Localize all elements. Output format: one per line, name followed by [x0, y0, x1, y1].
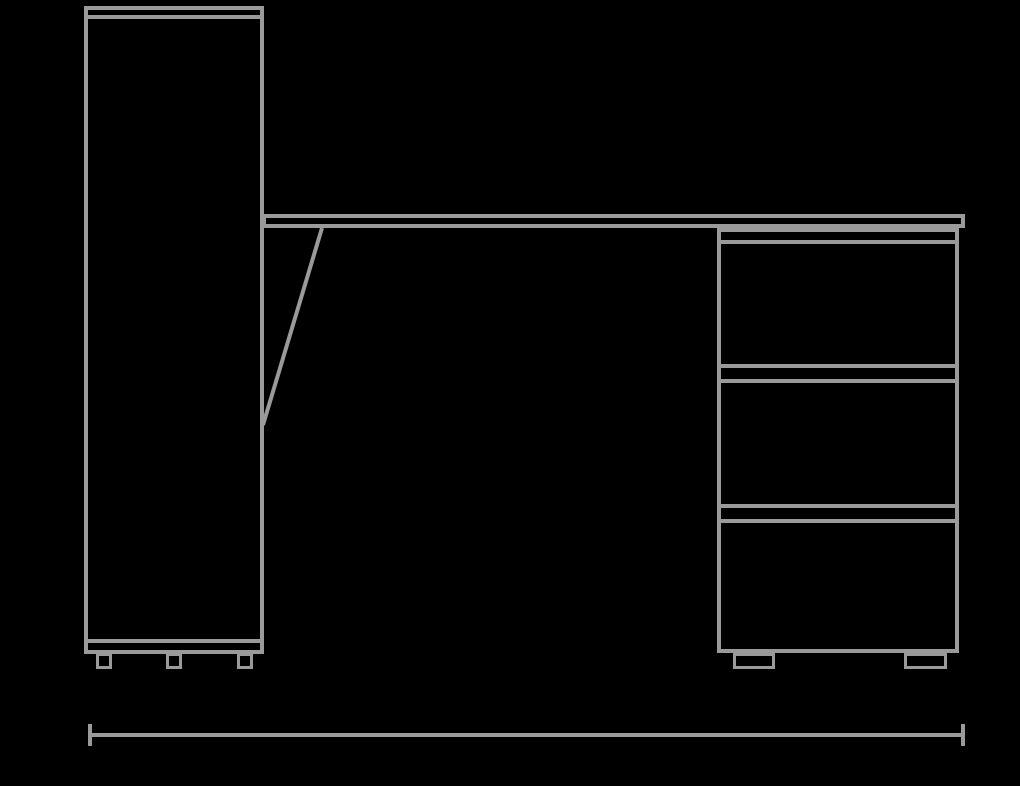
cabinet-plinth-line [84, 639, 264, 643]
drawer2-top-line [717, 379, 959, 383]
drawing-canvas [0, 0, 1020, 786]
drawer2-bottom-line [717, 504, 959, 508]
pedestal-foot-right [904, 653, 947, 669]
drawer3-top-line [717, 519, 959, 523]
diagonal-support-brace [250, 220, 340, 435]
dimension-tick-right [961, 724, 965, 746]
pedestal-foot-left [733, 653, 775, 669]
pedestal-top-rail-line [717, 240, 959, 244]
cabinet-foot-middle [166, 653, 182, 669]
dimension-tick-left [88, 724, 92, 746]
pedestal-outline [717, 228, 959, 653]
drawer1-bottom-line [717, 364, 959, 368]
cabinet-foot-right [237, 653, 253, 669]
cabinet-outline [84, 6, 264, 654]
diagonal-support-line [263, 228, 322, 425]
cabinet-top-panel-line [84, 15, 264, 19]
dimension-line [88, 733, 965, 737]
worktop-slab [262, 214, 965, 228]
cabinet-foot-left [96, 653, 112, 669]
